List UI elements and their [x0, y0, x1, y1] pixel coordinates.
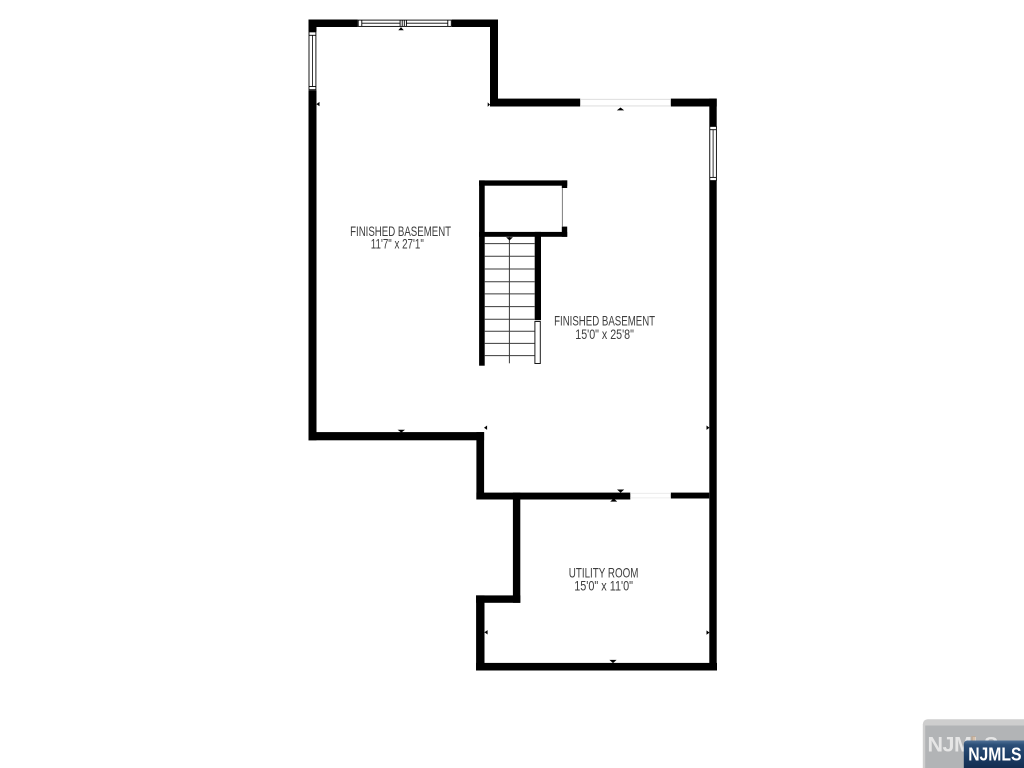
svg-text:NJMLS: NJMLS — [968, 744, 1021, 764]
svg-text:11'7" x 27'1": 11'7" x 27'1" — [371, 236, 424, 252]
svg-text:15'0" x 25'8": 15'0" x 25'8" — [575, 326, 634, 342]
svg-text:15'0" x 11'0": 15'0" x 11'0" — [574, 577, 633, 593]
